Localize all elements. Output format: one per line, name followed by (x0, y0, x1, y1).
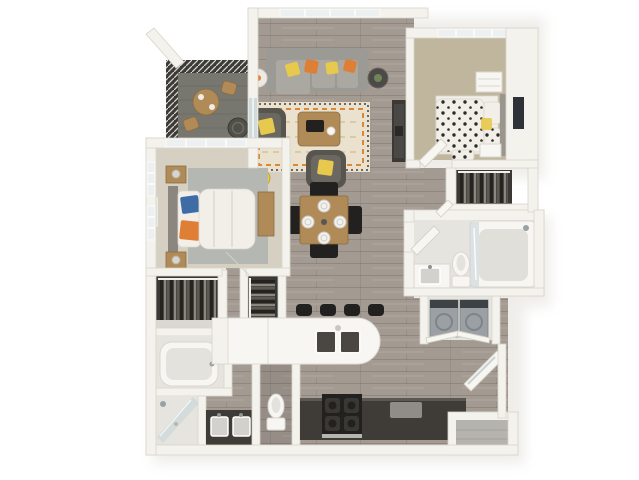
bath2-bottom-wall (404, 288, 544, 296)
white-dresser (476, 72, 502, 92)
faucet (428, 265, 432, 269)
bistro-plate (209, 104, 215, 110)
bedroom1-bottom-wall-left (146, 268, 222, 276)
bench (452, 150, 474, 160)
bar-stool (320, 304, 336, 316)
closet1-clothes (160, 280, 216, 320)
yellow-pillow (317, 159, 334, 176)
island-faucet (335, 325, 341, 331)
bottom-outer-wall (146, 445, 518, 455)
balcony-sliding-door (249, 98, 257, 140)
toilet (267, 394, 285, 430)
floor-plan-svg (0, 0, 639, 480)
dryer (460, 300, 488, 337)
cutting-board (390, 402, 422, 418)
bedroom1-top-window (166, 139, 246, 147)
side-table-right-plant (374, 74, 382, 82)
bath2-left-wall-upper (404, 210, 414, 222)
bedroom1-bottom-wall-right (246, 268, 290, 276)
faucet (217, 413, 221, 417)
faucet (239, 413, 243, 417)
bedroom2-bottom-wall-left (406, 160, 420, 168)
roof-beam (146, 28, 184, 68)
centerpiece (321, 219, 327, 225)
walkin-clothes (460, 173, 508, 203)
laundry (420, 296, 500, 344)
bedroom2-wall-art (512, 96, 525, 130)
bathtub (160, 342, 218, 386)
duvet (199, 189, 255, 249)
closet1-shelf (156, 320, 220, 328)
toilet-2 (452, 252, 470, 287)
bar-stool (344, 304, 360, 316)
shower2-head (523, 225, 529, 231)
bathroom-2 (404, 210, 544, 296)
pergola-rail-left (166, 60, 178, 148)
living-window (280, 9, 380, 17)
double-vanity (206, 410, 258, 445)
floor-plan-image (0, 0, 639, 480)
yellow-pillow (258, 117, 276, 135)
bath2-right-wall (534, 210, 544, 296)
kitchen-counter (300, 394, 466, 440)
lamp (172, 256, 180, 264)
range (322, 394, 362, 438)
round-lounge-chair (228, 118, 248, 138)
dresser (258, 192, 274, 236)
coffee-table-bowl (327, 127, 335, 135)
blue-pillow (180, 195, 200, 214)
washer (430, 300, 458, 337)
bedroom2-window (438, 29, 510, 37)
bar-stool (296, 304, 312, 316)
bistro-plate (198, 94, 204, 100)
shower-head (160, 401, 166, 407)
orange-throw (179, 220, 201, 241)
shower-drain (174, 422, 178, 426)
headboard (168, 186, 178, 252)
entry-right-wall (498, 344, 506, 418)
media-console (392, 100, 406, 162)
living-bed2-divider (406, 38, 414, 168)
hall-closet-clothes (251, 280, 275, 324)
bed-1 (168, 186, 255, 252)
bedroom2-bottom-wall-right (452, 160, 538, 168)
walk-in-shower (470, 221, 535, 287)
corner-shower (156, 396, 200, 445)
coffee-table (298, 112, 340, 146)
orange-pillow (304, 59, 319, 74)
yellow-pillow (325, 61, 339, 75)
vanity-2 (414, 264, 450, 288)
coffee-table-tray (306, 120, 324, 132)
nightstand (480, 144, 501, 157)
bar-stool (368, 304, 384, 316)
accent-cushion (481, 118, 492, 130)
lamp (172, 170, 180, 178)
bedroom1-right-wall (282, 138, 290, 276)
bistro-table (193, 89, 219, 115)
sectional-sofa (266, 48, 368, 94)
